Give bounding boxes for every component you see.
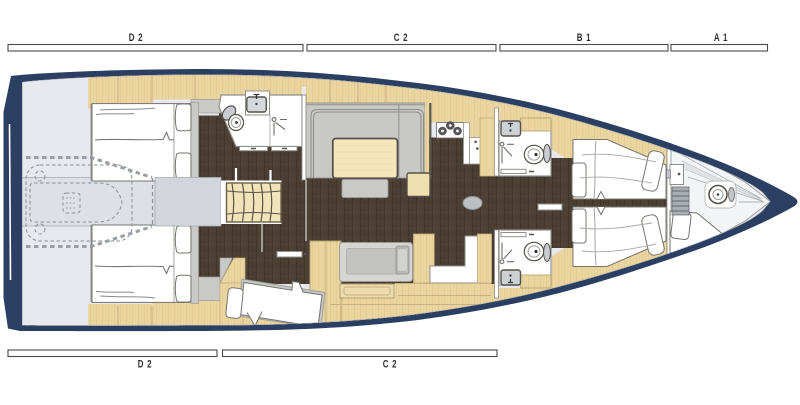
svg-text:B 1: B 1 [577, 32, 591, 45]
svg-text:C 2: C 2 [394, 32, 408, 45]
svg-text:D 2: D 2 [129, 32, 143, 45]
svg-text:A 1: A 1 [714, 32, 728, 45]
svg-text:D 2: D 2 [138, 358, 152, 371]
svg-text:C 2: C 2 [383, 358, 397, 371]
